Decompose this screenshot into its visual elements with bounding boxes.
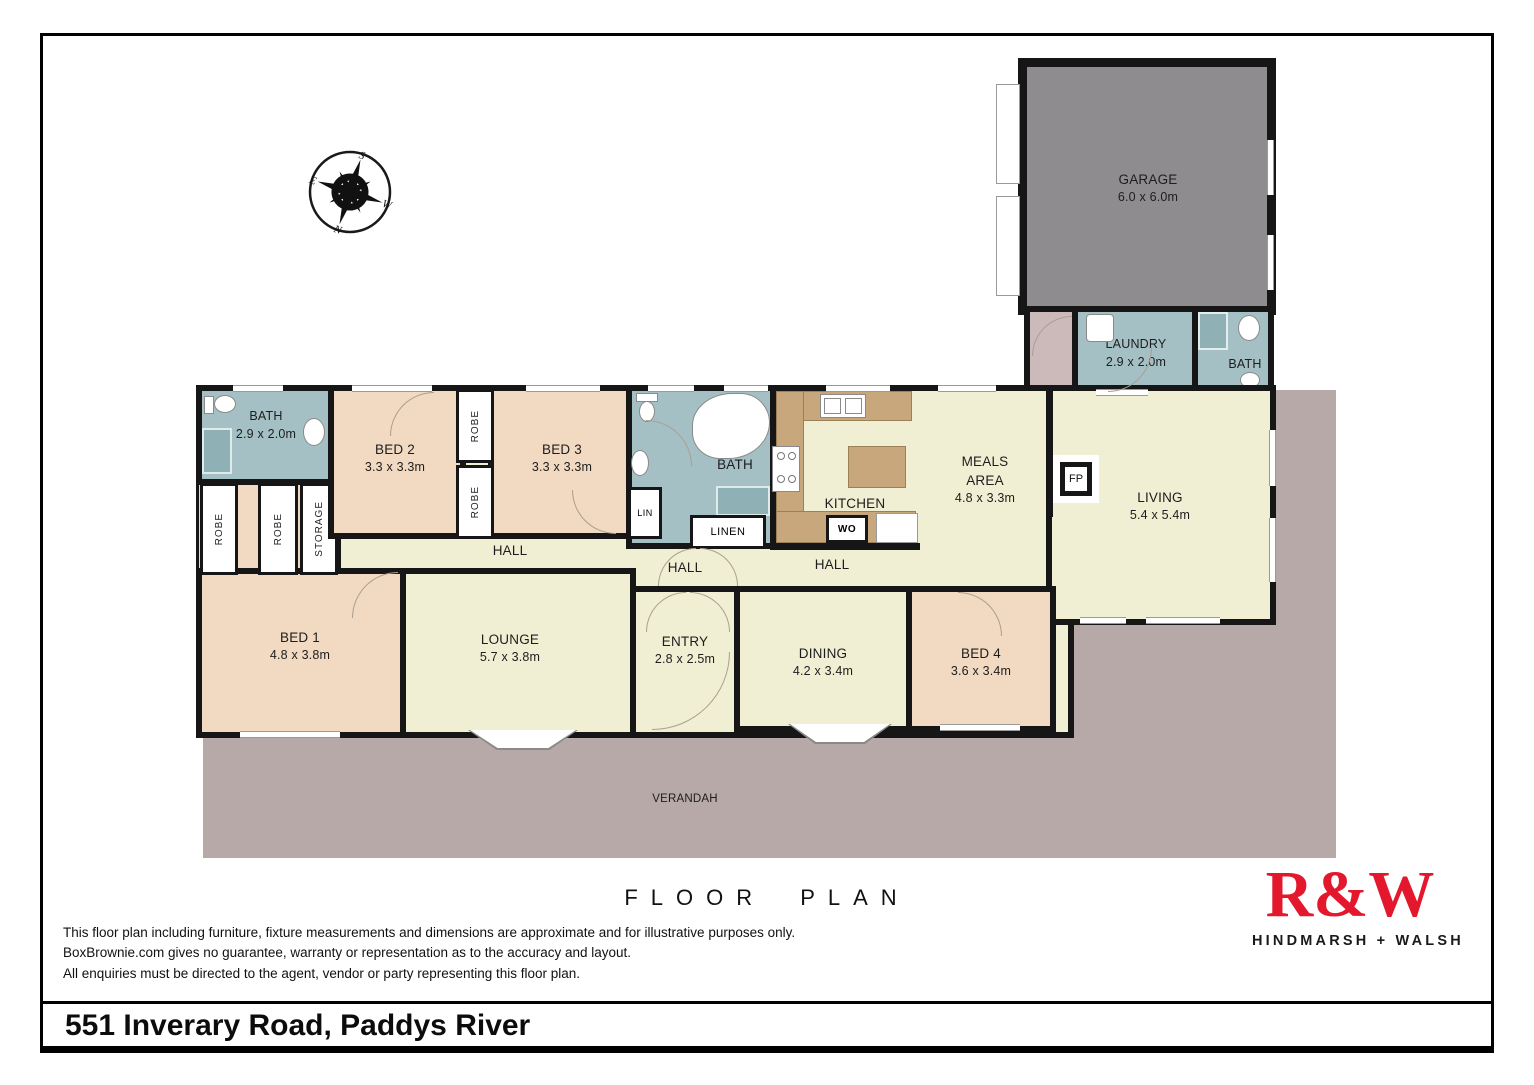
verandah-front bbox=[203, 731, 1336, 858]
bay-window bbox=[788, 724, 892, 744]
verandah-label: VERANDAH bbox=[610, 791, 760, 807]
window bbox=[526, 385, 600, 392]
meals-label: MEALS AREA 4.8 x 3.3m bbox=[943, 452, 1027, 508]
linen-label: LINEN bbox=[711, 526, 746, 538]
agency-branding: R&W HINDMARSH + WALSH bbox=[1252, 860, 1448, 949]
bed4-name: BED 4 bbox=[911, 644, 1051, 663]
wall-oven: WO bbox=[826, 515, 868, 543]
window bbox=[1146, 617, 1220, 624]
dining-label: DINING 4.2 x 3.4m bbox=[753, 644, 893, 681]
bed2-name: BED 2 bbox=[330, 440, 460, 459]
rw-logo: R&W bbox=[1252, 860, 1448, 929]
kitchen-sink-icon bbox=[820, 394, 866, 418]
window bbox=[724, 385, 768, 392]
hall-label: HALL bbox=[792, 555, 872, 574]
window bbox=[240, 731, 340, 738]
fireplace-label: FP bbox=[1069, 473, 1083, 485]
bath-main-label: BATH 2.9 x 2.0m bbox=[205, 408, 327, 444]
floor-plan-sheet: S W N E VERANDAH GARAGE 6.0 x 6.0m LAUND… bbox=[0, 0, 1534, 1085]
window bbox=[1269, 518, 1276, 582]
robe-label: ROBE bbox=[214, 513, 225, 545]
bath-main-dims: 2.9 x 2.0m bbox=[205, 426, 327, 444]
garage-name: GARAGE bbox=[1048, 170, 1248, 189]
robe-label: ROBE bbox=[470, 410, 481, 442]
kitchen-island bbox=[848, 446, 906, 488]
bed2-dims: 3.3 x 3.3m bbox=[330, 459, 460, 477]
robe-closet: ROBE bbox=[456, 389, 494, 463]
robe-closet: ROBE bbox=[258, 483, 298, 575]
bed4-dims: 3.6 x 3.4m bbox=[911, 663, 1051, 681]
lounge-label: LOUNGE 5.7 x 3.8m bbox=[440, 630, 580, 667]
wall-oven-label: WO bbox=[838, 524, 856, 535]
lin-closet: LIN bbox=[628, 487, 662, 539]
robe-closet: ROBE bbox=[200, 483, 238, 575]
bath-main-name: BATH bbox=[205, 408, 327, 426]
fireplace-icon: FP bbox=[1060, 462, 1092, 496]
agency-tagline: HINDMARSH + WALSH bbox=[1252, 933, 1448, 949]
bed1-dims: 4.8 x 3.8m bbox=[230, 647, 370, 665]
disclaimer-line2: BoxBrownie.com gives no guarantee, warra… bbox=[63, 943, 795, 963]
bath-ensuite-label: BATH bbox=[700, 455, 770, 474]
bay-window bbox=[468, 730, 578, 750]
bed3-dims: 3.3 x 3.3m bbox=[492, 459, 632, 477]
robe-closet: ROBE bbox=[456, 465, 494, 539]
compass-rose-icon: S W N E bbox=[305, 147, 395, 237]
dining-dims: 4.2 x 3.4m bbox=[753, 663, 893, 681]
window bbox=[938, 385, 996, 392]
wall-segment bbox=[770, 543, 920, 550]
meals-name: MEALS AREA bbox=[943, 452, 1027, 490]
shower-icon bbox=[1198, 312, 1228, 350]
garage-door-panel bbox=[996, 196, 1020, 296]
lounge-name: LOUNGE bbox=[440, 630, 580, 649]
toilet-icon bbox=[639, 401, 655, 422]
toilet-icon bbox=[1238, 315, 1260, 341]
lounge-dims: 5.7 x 3.8m bbox=[440, 649, 580, 667]
robe-label: ROBE bbox=[273, 513, 284, 545]
vanity-icon bbox=[716, 486, 770, 516]
living-label: LIVING 5.4 x 5.4m bbox=[1100, 488, 1220, 525]
window bbox=[826, 385, 890, 392]
laundry-tub-icon bbox=[1086, 314, 1114, 342]
property-address: 551 Inverary Road, Paddys River bbox=[65, 1004, 530, 1046]
window bbox=[648, 385, 694, 392]
garage-dims: 6.0 x 6.0m bbox=[1048, 189, 1248, 207]
living-dims: 5.4 x 5.4m bbox=[1100, 507, 1220, 525]
window bbox=[233, 385, 283, 392]
disclaimer-text: This floor plan including furniture, fix… bbox=[63, 923, 795, 984]
garage-door-panel bbox=[996, 84, 1020, 184]
garage-window bbox=[1267, 140, 1274, 195]
dining-name: DINING bbox=[753, 644, 893, 663]
cooktop-icon bbox=[772, 446, 800, 492]
window bbox=[1269, 430, 1276, 486]
bed1-label: BED 1 4.8 x 3.8m bbox=[230, 628, 370, 665]
entry-name: ENTRY bbox=[648, 632, 722, 651]
garage-window bbox=[1267, 235, 1274, 290]
kitchen-label: KITCHEN bbox=[800, 494, 910, 513]
disclaimer-line1: This floor plan including furniture, fix… bbox=[63, 923, 795, 943]
lin-label: LIN bbox=[637, 508, 653, 518]
window bbox=[352, 385, 432, 392]
wall-segment bbox=[1046, 391, 1053, 517]
window bbox=[940, 724, 1020, 731]
window bbox=[1096, 389, 1148, 396]
bed4-label: BED 4 3.6 x 3.4m bbox=[911, 644, 1051, 681]
linen-closet: LINEN bbox=[690, 515, 766, 549]
bed2-label: BED 2 3.3 x 3.3m bbox=[330, 440, 460, 477]
living-name: LIVING bbox=[1100, 488, 1220, 507]
kitchen-appliance bbox=[876, 513, 918, 543]
garage-label: GARAGE 6.0 x 6.0m bbox=[1048, 170, 1248, 207]
address-bar: 551 Inverary Road, Paddys River bbox=[43, 1001, 1491, 1050]
disclaimer-line3: All enquiries must be directed to the ag… bbox=[63, 964, 795, 984]
bath-rear-label: BATH bbox=[1216, 356, 1274, 374]
storage-label: STORAGE bbox=[314, 501, 325, 557]
bed3-name: BED 3 bbox=[492, 440, 632, 459]
meals-dims: 4.8 x 3.3m bbox=[943, 490, 1027, 508]
robe-label: ROBE bbox=[470, 486, 481, 518]
window bbox=[1080, 617, 1126, 624]
bed1-name: BED 1 bbox=[230, 628, 370, 647]
bed3-label: BED 3 3.3 x 3.3m bbox=[492, 440, 632, 477]
hall-label: HALL bbox=[470, 541, 550, 560]
